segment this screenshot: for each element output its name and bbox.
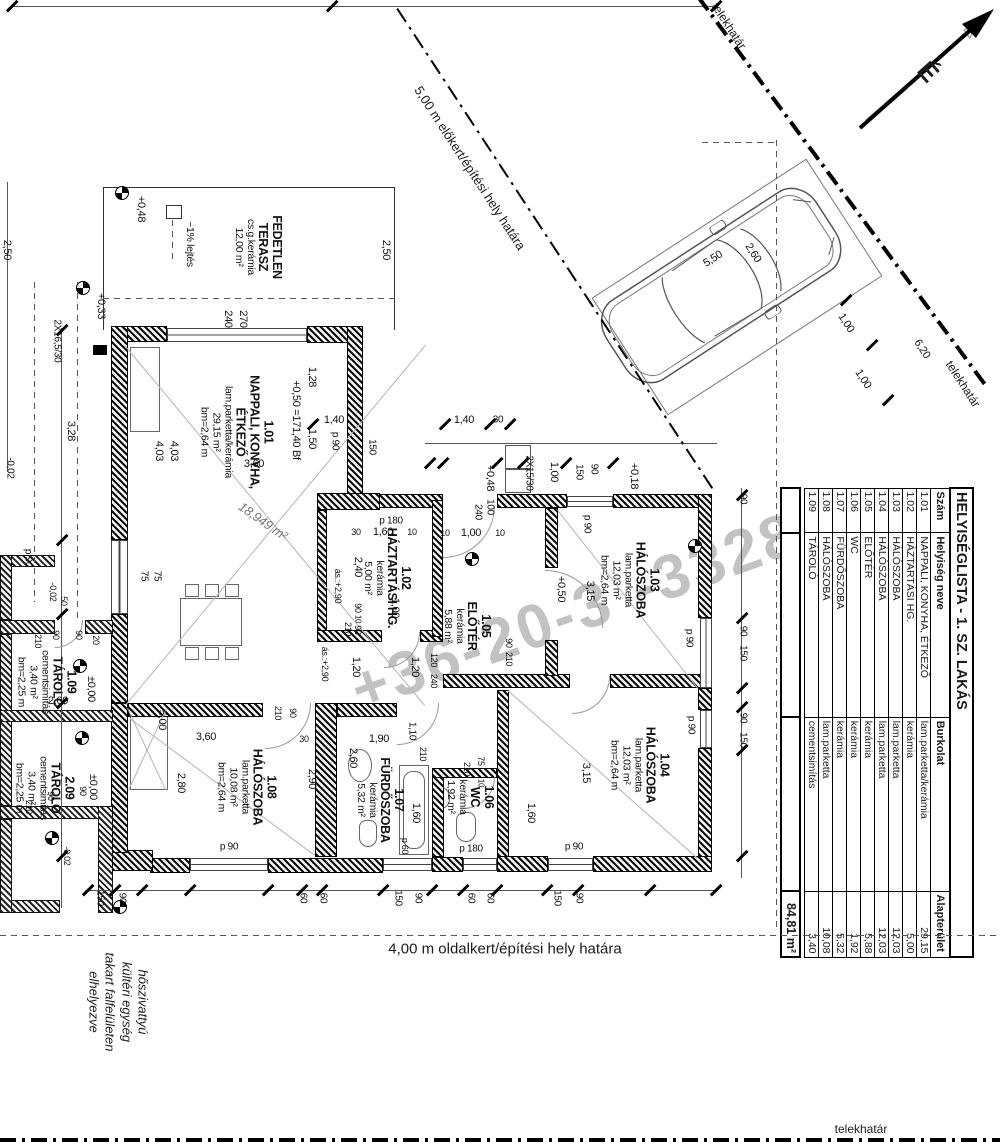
table-cell: 5,00 bbox=[903, 891, 917, 957]
dim-label: ás.:+2,90 bbox=[320, 647, 330, 682]
table-cell: lam.parketta bbox=[875, 717, 889, 891]
dim-label: 2,50 bbox=[380, 240, 392, 260]
room-label-line: cs.g.kerámia bbox=[244, 215, 256, 279]
table-cell: lam.parketta bbox=[819, 717, 833, 891]
dim-label: 150 bbox=[738, 732, 749, 748]
dim-label: 4,03 bbox=[153, 441, 165, 461]
dim-label: p 90 bbox=[330, 432, 341, 450]
dim-label: 210 bbox=[343, 622, 353, 636]
dimension-tick bbox=[607, 457, 619, 469]
table-row: 1.06WCkerámia1,92 bbox=[847, 488, 861, 957]
dim-label: 3,60 bbox=[196, 731, 216, 743]
window bbox=[463, 858, 497, 871]
wall-segment bbox=[85, 620, 113, 634]
dim-label: 1,60 bbox=[410, 803, 422, 823]
dim-label: +0,50 =171,40 Bf bbox=[290, 380, 302, 460]
dim-label: 75 bbox=[152, 571, 163, 582]
dimension-tick bbox=[736, 612, 748, 624]
table-column-header: Helyiség neve bbox=[931, 533, 950, 717]
property-line-bottom-label: telekhatár bbox=[835, 1122, 888, 1136]
room-label-line: HÁLÓSZOBA bbox=[644, 727, 658, 803]
dim-label: 1,50 bbox=[306, 429, 318, 449]
room-label-line: 1,92 m² bbox=[444, 779, 456, 814]
dim-label: 240 bbox=[222, 310, 234, 327]
dim-label: 270 bbox=[237, 310, 249, 327]
table-cell: 1.02 bbox=[903, 488, 917, 533]
wall-segment bbox=[497, 690, 509, 857]
elevation-marker bbox=[75, 731, 89, 745]
room-label-line: FEDETLEN bbox=[270, 215, 284, 279]
wall-segment bbox=[317, 493, 380, 510]
dim-label: 210 bbox=[33, 634, 43, 648]
table-cell: 1.06 bbox=[847, 488, 861, 533]
table-cell: HÁZTARTÁSI HG. bbox=[903, 533, 917, 717]
dim-label: 60 bbox=[485, 893, 496, 904]
property-boundary-line bbox=[0, 1138, 1000, 1142]
dimension-line bbox=[7, 182, 8, 472]
table-column-header: Szám bbox=[931, 488, 950, 533]
wall-segment bbox=[698, 748, 712, 870]
table-row: 1.04HÁLÓSZOBAlam.parketta12,03 bbox=[875, 488, 889, 957]
dim-label: 150 bbox=[95, 890, 106, 906]
dim-label: 240 bbox=[473, 504, 484, 520]
wall-segment bbox=[698, 688, 712, 710]
room-label-line: NAPPALI, KONYHA, bbox=[248, 375, 262, 489]
wall-segment bbox=[432, 857, 463, 872]
note-line: elhelyezve bbox=[86, 952, 102, 1051]
table-column-header: Alapterület bbox=[931, 891, 950, 957]
dim-label: 1,28 bbox=[306, 367, 318, 387]
room-label-line: 3,40 m² bbox=[25, 756, 37, 820]
room-label: 1.01NAPPALI, KONYHA,ÉTKEZŐlam.parketta/k… bbox=[198, 375, 275, 489]
dimension-line bbox=[10, 6, 718, 7]
table-title: HELYISÉGLISTA - 1. SZ. LAKÁS bbox=[950, 488, 973, 957]
wall-segment bbox=[128, 703, 263, 717]
room-label-line: ÉTKEZŐ bbox=[234, 375, 248, 489]
dimension-tick bbox=[736, 850, 748, 862]
dim-label: 90 bbox=[74, 630, 84, 639]
dim-label: -0,02 bbox=[5, 457, 16, 478]
room-label-line: lam.parketta bbox=[632, 727, 644, 803]
dimension-tick bbox=[866, 339, 878, 351]
room-label-line: 1.05 bbox=[479, 602, 493, 651]
elevation-marker bbox=[688, 539, 702, 553]
window bbox=[548, 858, 593, 871]
room-label: 1.07FÜRDŐSZOBAkerámia5,32 m² bbox=[354, 757, 406, 842]
dashed-line bbox=[776, 140, 777, 932]
wall-segment bbox=[593, 856, 712, 872]
room-label-line: 1.02 bbox=[399, 528, 413, 628]
table-cell: HÁLÓSZOBA bbox=[875, 533, 889, 717]
dim-label: 60 bbox=[318, 893, 329, 904]
dimension-tick bbox=[504, 418, 516, 430]
wall-segment bbox=[111, 326, 128, 540]
dim-label: 1,00 bbox=[548, 462, 560, 482]
table-cell: 1.05 bbox=[861, 488, 875, 533]
dining-table bbox=[180, 598, 242, 646]
table-header-row: SzámHelyiség neveBurkolatAlapterület bbox=[931, 488, 950, 957]
wall-segment bbox=[111, 703, 128, 853]
dim-label: 75 bbox=[139, 571, 150, 582]
dim-label: 1,10 bbox=[407, 722, 418, 740]
wall-segment bbox=[0, 620, 55, 634]
dim-label: 90 bbox=[78, 786, 88, 795]
dim-label: 50 bbox=[59, 596, 69, 605]
wall-segment bbox=[268, 858, 383, 873]
heat-pump-note: hőszivattyúkültéri egységtakart falfelül… bbox=[86, 952, 151, 1051]
chair bbox=[185, 647, 199, 660]
elevation-marker bbox=[76, 281, 90, 295]
dim-label: 30 bbox=[493, 415, 504, 426]
dim-label: 75 bbox=[476, 756, 486, 765]
room-label-line: kerámia bbox=[373, 528, 385, 628]
dim-label: 2,90 bbox=[306, 769, 318, 789]
room-label-line: 10,08 m² bbox=[227, 749, 239, 825]
dim-label: 90 bbox=[288, 708, 298, 717]
dim-label: 30 bbox=[351, 527, 360, 537]
table-cell: 12,03 bbox=[889, 891, 903, 957]
wall-segment bbox=[0, 819, 12, 913]
table-cell: kerámia bbox=[903, 717, 917, 891]
dim-label: 3,28 bbox=[65, 421, 77, 441]
elevation-marker bbox=[465, 552, 479, 566]
room-label: 1.05ELŐTÉRkerámia5,88 m² bbox=[441, 602, 493, 651]
wall-segment bbox=[497, 856, 548, 872]
dim-label: 90 bbox=[504, 638, 514, 647]
dim-label: 1,60 bbox=[525, 803, 537, 823]
room-label-line: bm=2,25 m bbox=[13, 756, 25, 820]
dim-label: p 90 bbox=[565, 842, 583, 853]
dim-label: 5,00 bbox=[156, 710, 168, 730]
table-cell: TÁROLÓ bbox=[805, 533, 819, 717]
dim-label: 90 bbox=[589, 464, 600, 475]
dim-label: p 90 bbox=[23, 549, 34, 567]
dim-label: +0,48 bbox=[135, 196, 147, 222]
table-cell: WC bbox=[847, 533, 861, 717]
table-row: 1.07FÜRDŐSZOBAkerámia5,32 bbox=[833, 488, 847, 957]
table-cell: 1.07 bbox=[833, 488, 847, 533]
dim-label: 6,20 bbox=[911, 337, 932, 360]
dim-label: p 90 bbox=[684, 629, 695, 647]
table-row: 1.05ELŐTÉRkerámia5,88 bbox=[861, 488, 875, 957]
dim-label: ±0,00 bbox=[87, 774, 99, 800]
table-cell: 12,03 bbox=[875, 891, 889, 957]
table-cell: 1.09 bbox=[805, 488, 819, 533]
chair bbox=[205, 647, 219, 660]
room-label-line: ELŐTÉR bbox=[465, 602, 479, 651]
dim-label: 4,03 bbox=[168, 441, 180, 461]
dim-label: 120 bbox=[429, 653, 439, 667]
dim-label: 10 bbox=[440, 528, 449, 538]
room-label-line: 5,00 m² bbox=[361, 528, 373, 628]
wall-segment bbox=[432, 768, 444, 857]
dim-label: 1,00 bbox=[461, 527, 481, 539]
wall-segment bbox=[150, 858, 190, 873]
room-label: 1.06WCkerámia1,92 m² bbox=[444, 779, 496, 814]
wall-segment bbox=[0, 555, 12, 620]
dimension-tick bbox=[882, 394, 894, 406]
dim-label: +0,50 bbox=[555, 576, 567, 602]
door-arc bbox=[572, 676, 610, 714]
dim-label: p 90 bbox=[686, 716, 697, 734]
table-row: 1.09TÁROLÓcementsimítás3,40 bbox=[805, 488, 819, 957]
table-cell: 5,32 bbox=[833, 891, 847, 957]
table-total-area: 84,81 m² bbox=[782, 891, 801, 957]
room-label-line: HÁLÓSZOBA bbox=[251, 749, 265, 825]
window bbox=[190, 858, 268, 871]
dimension-tick bbox=[437, 457, 449, 469]
window bbox=[567, 496, 613, 507]
room-label-line: lam.parketta bbox=[622, 542, 634, 618]
room-label-line: WC bbox=[468, 779, 482, 814]
dim-label: p 90 bbox=[220, 842, 238, 853]
table-cell: 1.03 bbox=[889, 488, 903, 533]
window bbox=[167, 328, 307, 342]
table-cell: lam.parketta bbox=[889, 717, 903, 891]
dim-label: 150 bbox=[393, 890, 404, 906]
room-label-line: 1.09 bbox=[65, 650, 79, 714]
table-cell: ELŐTÉR bbox=[861, 533, 875, 717]
slope-arrow-icon bbox=[167, 206, 181, 218]
table-cell: HÁLÓSZOBA bbox=[889, 533, 903, 717]
room-label-line: 12,00 m² bbox=[232, 215, 244, 279]
room-label-line: bm=2,25 m bbox=[15, 650, 27, 714]
room-label-line: bm=2,64 m bbox=[215, 749, 227, 825]
note-line: takart falfelületen bbox=[102, 952, 118, 1051]
dim-label: 20 bbox=[91, 635, 101, 644]
wc-toilet bbox=[456, 812, 476, 842]
table-cell: kerámia bbox=[847, 717, 861, 891]
table-cell: FÜRDŐSZOBA bbox=[833, 533, 847, 717]
room-label: 1.02HÁZTARTÁSI HG.kerámia5,00 m² bbox=[361, 528, 413, 628]
window bbox=[111, 540, 128, 614]
dimension-line bbox=[425, 443, 717, 444]
table-cell: lam.parketta/kerámia bbox=[917, 717, 931, 891]
dim-label: 90 bbox=[738, 713, 749, 724]
table-cell: cementsimítás bbox=[805, 717, 819, 891]
dashed-line bbox=[702, 142, 777, 143]
room-list-table: HELYISÉGLISTA - 1. SZ. LAKÁS SzámHelyisé… bbox=[781, 487, 975, 958]
dim-label: 90 bbox=[738, 626, 749, 637]
dim-label: 1,20 bbox=[409, 657, 421, 677]
wall-segment bbox=[545, 640, 558, 676]
window bbox=[383, 858, 432, 871]
table-cell: HÁLÓSZOBA bbox=[819, 533, 833, 717]
room-label-line: 1.08 bbox=[265, 749, 279, 825]
room-label-line: 1.03 bbox=[648, 542, 662, 618]
room-label-line: cementsimítás bbox=[37, 756, 49, 820]
dim-label: 2,50 bbox=[1, 240, 13, 260]
table-row: 1.08HÁLÓSZOBAlam.parketta10,08 bbox=[819, 488, 833, 957]
dimension-tick bbox=[439, 418, 451, 430]
dimension-line bbox=[741, 488, 742, 878]
table-row: 1.02HÁZTARTÁSI HG.kerámia5,00 bbox=[903, 488, 917, 957]
dim-label: 210 bbox=[462, 762, 472, 776]
front-setback-label: 5,00 m előkert/építési hely határa bbox=[411, 83, 528, 252]
room-label: FEDETLENTERASZcs.g.kerámia12,00 m² bbox=[232, 215, 284, 279]
dim-label: 150 bbox=[552, 890, 563, 906]
chair bbox=[225, 647, 239, 660]
table-cell: kerámia bbox=[861, 717, 875, 891]
window bbox=[700, 710, 712, 748]
wall-segment bbox=[497, 494, 567, 508]
room-label-line: 1.07 bbox=[392, 757, 406, 842]
dim-label: 18,949 m² bbox=[236, 499, 290, 543]
dimension-tick bbox=[56, 534, 68, 546]
table-column-header: Burkolat bbox=[931, 717, 950, 891]
room-label-line: lam.parketta/kerámia bbox=[222, 375, 234, 489]
dim-label: 60 bbox=[298, 893, 309, 904]
dim-label: 210 bbox=[504, 652, 514, 666]
dashed-line bbox=[0, 935, 1000, 936]
room-label-line: 2.09 bbox=[63, 756, 77, 820]
room-label-line: TERASZ bbox=[256, 215, 270, 279]
table-cell: 1.04 bbox=[875, 488, 889, 533]
dashed-line bbox=[34, 282, 35, 602]
wall-segment bbox=[443, 674, 570, 688]
dim-label: 210 bbox=[273, 706, 283, 720]
dim-label: 1,40 bbox=[324, 414, 344, 426]
dimension-tick bbox=[424, 457, 436, 469]
room-label-line: HÁZTARTÁSI HG. bbox=[385, 528, 399, 628]
property-line-right-label: telekhatár bbox=[943, 358, 983, 410]
room-label-line: HÁLÓSZOBA bbox=[634, 542, 648, 618]
dim-label: 90 bbox=[117, 893, 128, 904]
dim-label: p 180 bbox=[459, 844, 483, 855]
table-cell: 10,08 bbox=[819, 891, 833, 957]
room-label-line: 3,40 m² bbox=[27, 650, 39, 714]
dim-label: +0,48 bbox=[484, 465, 496, 491]
wall-segment bbox=[545, 508, 558, 568]
dim-label: 2X15/30 bbox=[524, 455, 535, 490]
table-cell: kerámia bbox=[833, 717, 847, 891]
room-label-line: ~1% lejtés bbox=[183, 221, 195, 267]
room-label-line: bm=2,64 m bbox=[598, 542, 610, 618]
table-row: 1.03HÁLÓSZOBAlam.parketta12,03 bbox=[889, 488, 903, 957]
dimension-tick bbox=[736, 701, 748, 713]
chair bbox=[225, 584, 239, 597]
elevation-marker bbox=[115, 186, 129, 200]
table-total-row: 84,81 m² bbox=[781, 487, 802, 958]
table-cell: 1.08 bbox=[819, 488, 833, 533]
dashed-line bbox=[103, 298, 395, 299]
dim-label: 1,00 bbox=[852, 367, 873, 390]
dim-label: 60 bbox=[466, 893, 477, 904]
room-label: 1.08HÁLÓSZOBAlam.parketta10,08 m²bm=2,64… bbox=[215, 749, 278, 825]
dim-label: 3,15 bbox=[580, 763, 592, 783]
dim-label: 150 bbox=[367, 439, 378, 455]
table-cell: 29,15 bbox=[917, 891, 931, 957]
dim-label: +0,33 bbox=[95, 293, 107, 319]
room-label-line: 1.04 bbox=[658, 727, 672, 803]
dim-label: 150 bbox=[574, 464, 585, 480]
room-label-line: FÜRDŐSZOBA bbox=[378, 757, 392, 842]
room-label-line: kerámia bbox=[456, 779, 468, 814]
wall-segment bbox=[337, 703, 397, 717]
room-label-line: kerámia bbox=[453, 602, 465, 651]
window bbox=[700, 618, 712, 688]
table-cell: 5,88 bbox=[861, 891, 875, 957]
room-label-line: cementsimítás bbox=[39, 650, 51, 714]
dim-label: ás.:+2,90 bbox=[333, 569, 343, 604]
dim-label: 90 bbox=[574, 893, 585, 904]
dimension-tick bbox=[560, 457, 572, 469]
dim-label: 10 bbox=[495, 528, 504, 538]
dimension-line bbox=[61, 328, 62, 908]
room-label-line: kerámia bbox=[366, 757, 378, 842]
room-label-line: 1.06 bbox=[482, 779, 496, 814]
dim-label: -0,02 bbox=[48, 582, 58, 601]
room-label-line: 29,15 m² bbox=[210, 375, 222, 489]
dim-label: 100 bbox=[485, 499, 496, 515]
dim-label: -0,02 bbox=[62, 846, 72, 865]
note-line: kültéri egység bbox=[118, 952, 134, 1051]
dim-label: 3,15 bbox=[584, 581, 596, 601]
room-label-line: 1.01 bbox=[262, 375, 276, 489]
wall-segment bbox=[347, 326, 363, 508]
wall-segment bbox=[317, 510, 327, 637]
wall-marker bbox=[93, 345, 107, 355]
floor-plan-drawing: 5,00 m előkert/építési hely határa telek… bbox=[0, 0, 1000, 1148]
dim-label: p 90 bbox=[582, 515, 593, 533]
room-label: 1.04HÁLÓSZOBAlam.parketta12,03 m²bm=2,64… bbox=[608, 727, 671, 803]
room-label-line: TÁROLÓ bbox=[51, 650, 65, 714]
dim-label: 90 bbox=[738, 494, 749, 505]
dim-label: 150 bbox=[738, 645, 749, 661]
room-label: ~1% lejtés bbox=[183, 221, 195, 267]
kitchen-counter bbox=[130, 347, 160, 432]
dim-label: 1,00 bbox=[835, 311, 856, 334]
slope-arrow-stem bbox=[172, 220, 173, 264]
dim-label: 2X16,5/30 bbox=[52, 320, 63, 363]
room-label: 2.09TÁROLÓcementsimítás3,40 m²bm=2,25 m bbox=[13, 756, 76, 820]
dim-label: 240 bbox=[429, 674, 439, 688]
dim-label: 210 bbox=[418, 747, 428, 761]
table-cell: NAPPALI, KONYHA, ÉTKEZŐ bbox=[917, 533, 931, 717]
wall-segment bbox=[315, 703, 337, 857]
wall-segment bbox=[111, 614, 128, 703]
dim-label: 1,20 bbox=[350, 657, 362, 677]
room-label-line: lam.parketta bbox=[239, 749, 251, 825]
dim-label: 1,40 bbox=[454, 414, 474, 426]
dim-label: ±0,00 bbox=[85, 676, 97, 702]
dim-label: p 180 bbox=[379, 516, 403, 527]
dimension-tick bbox=[736, 682, 748, 694]
dashed-line bbox=[77, 282, 78, 622]
dim-label: +0,18 bbox=[628, 463, 640, 489]
table-cell: 1.01 bbox=[917, 488, 931, 533]
dim-label: 30 bbox=[299, 734, 308, 744]
room-label-line: bm=2,64 m bbox=[198, 375, 210, 489]
table-cell: 3,40 bbox=[805, 891, 819, 957]
table-cell: 1,92 bbox=[847, 891, 861, 957]
room-label-line: bm=2,64 m bbox=[608, 727, 620, 803]
elevation-marker bbox=[45, 831, 59, 845]
dim-label: 90 bbox=[413, 893, 424, 904]
wall-segment bbox=[111, 850, 153, 871]
dim-label: 2,80 bbox=[175, 773, 187, 793]
room-label-line: 12,03 m² bbox=[620, 727, 632, 803]
room-label-line: TÁROLÓ bbox=[49, 756, 63, 820]
chair bbox=[185, 584, 199, 597]
side-setback-label: 4,00 m oldalkert/építési hely határa bbox=[388, 941, 621, 958]
room-label-line: 12,03 m² bbox=[610, 542, 622, 618]
note-line: hőszivattyú bbox=[134, 952, 150, 1051]
room-label-line: 5,88 m² bbox=[441, 602, 453, 651]
room-label: 1.09TÁROLÓcementsimítás3,40 m²bm=2,25 m bbox=[15, 650, 78, 714]
door-arc bbox=[397, 703, 439, 745]
room-label: 1.03HÁLÓSZOBAlam.parketta12,03 m²bm=2,64… bbox=[598, 542, 661, 618]
